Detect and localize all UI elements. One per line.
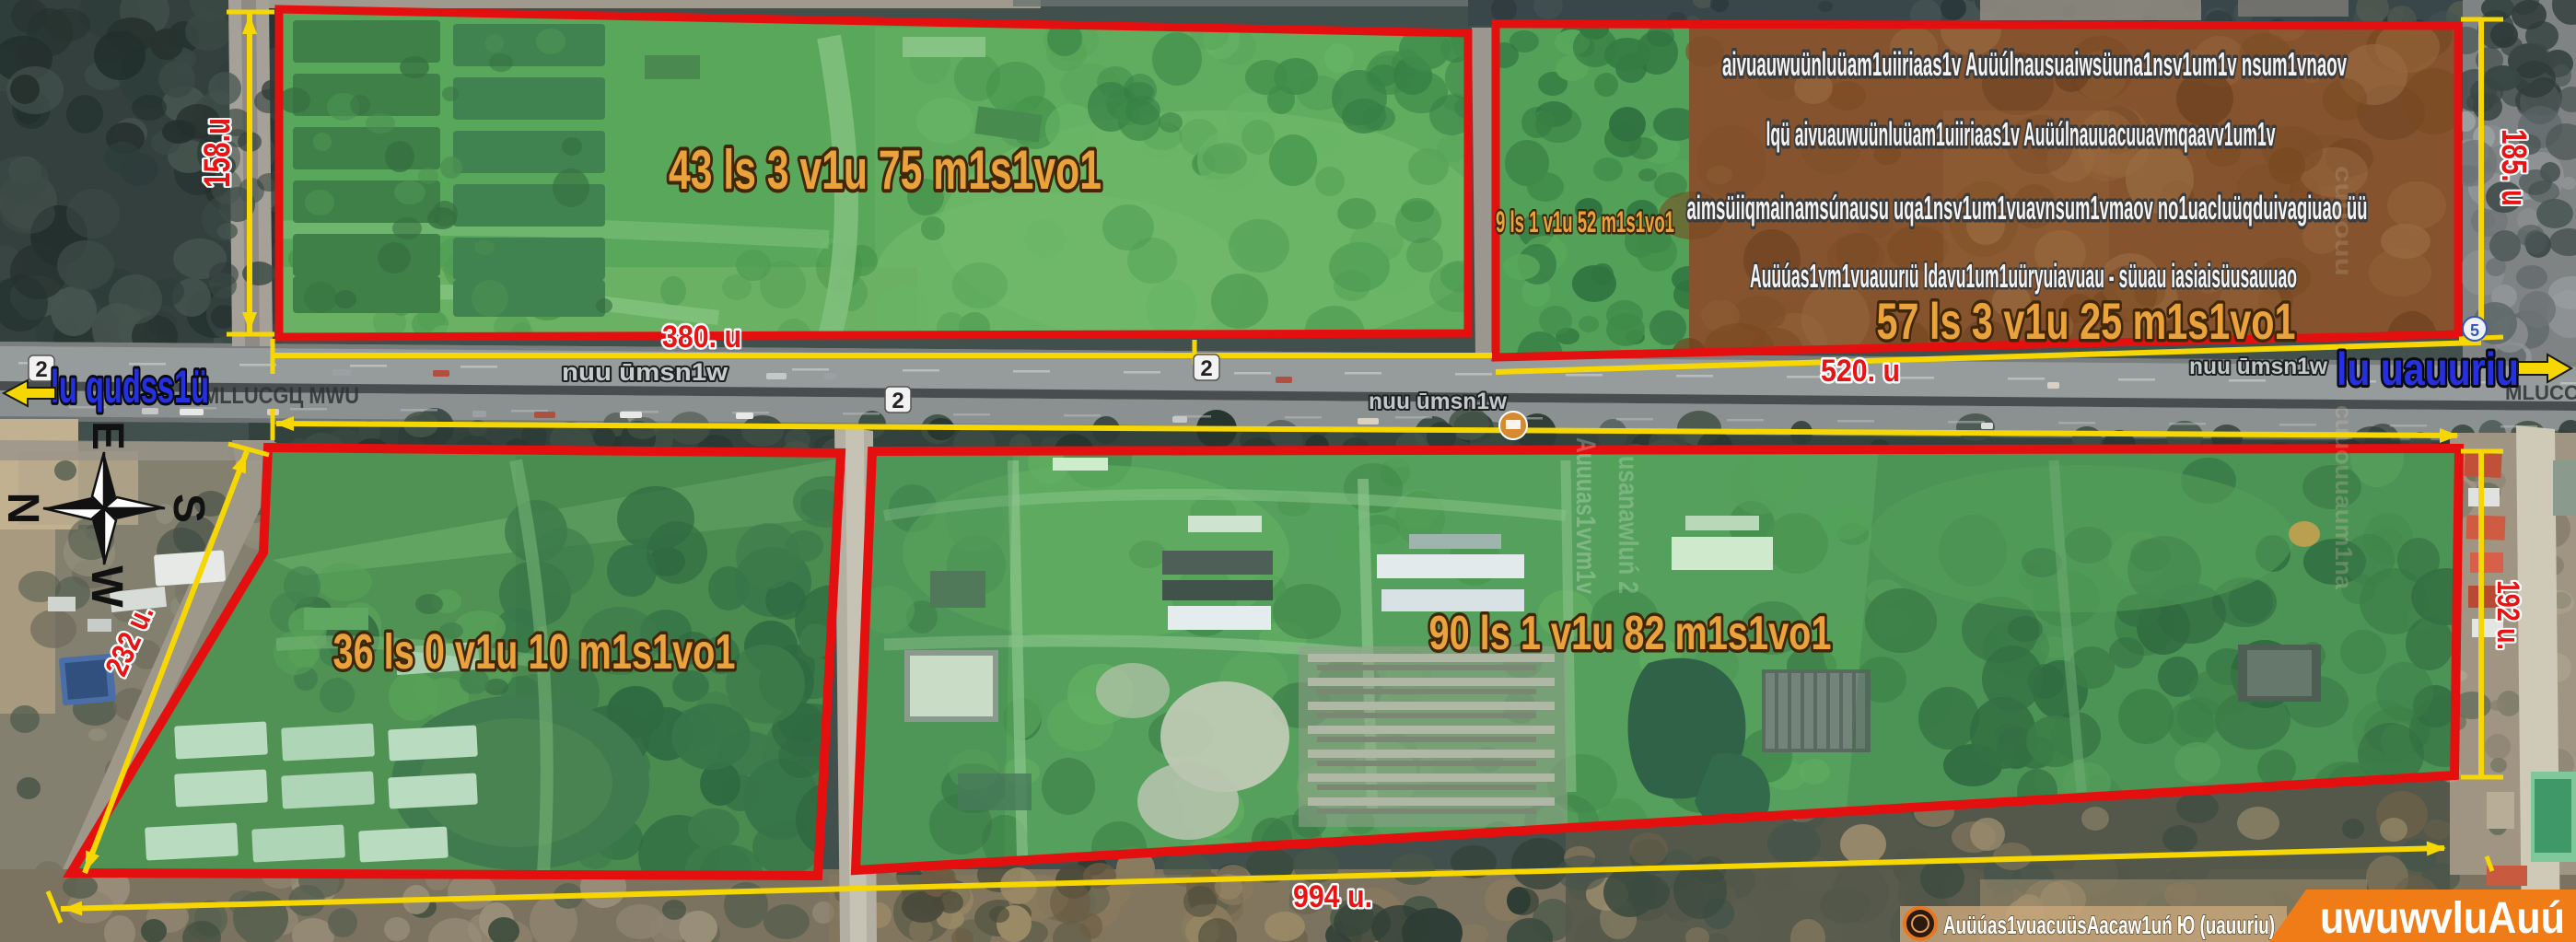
- svg-text:43 ls 3 v1u 75 m1s1vo1: 43 ls 3 v1u 75 m1s1vo1: [669, 139, 1102, 201]
- svg-text:9 ls 1 v1u 52 m1s1vo1: 9 ls 1 v1u 52 m1s1vo1: [1496, 205, 1674, 238]
- svg-text:2: 2: [892, 389, 903, 413]
- svg-text:W: W: [82, 565, 131, 608]
- svg-text:S: S: [164, 494, 213, 523]
- svg-text:lu qudss1ü: lu qudss1ü: [51, 361, 209, 413]
- svg-text:MLLUCGЦ MWU: MLLUCGЦ MWU: [203, 383, 359, 409]
- svg-text:usanawluń 2: usanawluń 2: [1613, 456, 1643, 594]
- svg-text:aivuauwuünluüam1uiiriaas1v Auü: aivuauwuünluüam1uiiriaas1v Auüúlnausuaiw…: [1722, 45, 2347, 83]
- svg-text:nuu ūmsn1w: nuu ūmsn1w: [2189, 354, 2328, 379]
- svg-text:uwuwvluAuú: uwuwvluAuú: [2320, 894, 2565, 942]
- svg-text:cuuouuaum1na: cuuouuaum1na: [2330, 405, 2358, 590]
- svg-text:90 ls 1 v1u 82 m1s1vo1: 90 ls 1 v1u 82 m1s1vo1: [1429, 607, 1832, 660]
- svg-text:Auüúas1vm1vuauurıü ldavu1um1uü: Auüúas1vm1vuauurıü ldavu1um1uüryuiavuau …: [1750, 257, 2297, 295]
- svg-text:185. u: 185. u: [2494, 129, 2533, 206]
- svg-text:aimsüiiqmainamsúnausu uqa1nsv1: aimsüiiqmainamsúnausu uqa1nsv1um1vuavnsu…: [1687, 189, 2368, 227]
- svg-text:380. u: 380. u: [662, 320, 741, 355]
- svg-text:57 ls 3 v1u 25 m1s1vo1: 57 ls 3 v1u 25 m1s1vo1: [1877, 292, 2296, 350]
- svg-text:158.u: 158.u: [197, 118, 238, 188]
- svg-text:nuu ūmsn1w: nuu ūmsn1w: [562, 358, 729, 386]
- svg-text:N: N: [0, 493, 47, 525]
- svg-text:lu uauuriu: lu uauuriu: [2337, 343, 2519, 395]
- svg-text:5: 5: [2470, 321, 2479, 340]
- svg-text:36 ls 0 v1u 10 m1s1vo1: 36 ls 0 v1u 10 m1s1vo1: [333, 624, 736, 680]
- svg-text:2: 2: [35, 357, 47, 382]
- svg-text:nuu ūmsn1w: nuu ūmsn1w: [1369, 389, 1508, 414]
- svg-text:Auuuas1vvm1v: Auuuas1vvm1v: [1570, 437, 1601, 594]
- svg-text:192 u.: 192 u.: [2490, 580, 2525, 650]
- svg-text:520. u: 520. u: [1821, 354, 1900, 389]
- svg-text:cuuouu: cuuouu: [2330, 166, 2358, 276]
- svg-text:2: 2: [1200, 356, 1212, 381]
- svg-text:994 u.: 994 u.: [1293, 879, 1372, 914]
- svg-text:Auüúas1vuacuüsAacaw1uń Ю (uauu: Auüúas1vuacuüsAacaw1uń Ю (uauuriu): [1943, 911, 2275, 939]
- svg-text:lqü aivuauwuünluüam1uiiriaas1v: lqü aivuauwuünluüam1uiiriaas1v Auüúlnauu…: [1766, 115, 2276, 153]
- svg-text:E: E: [83, 421, 132, 450]
